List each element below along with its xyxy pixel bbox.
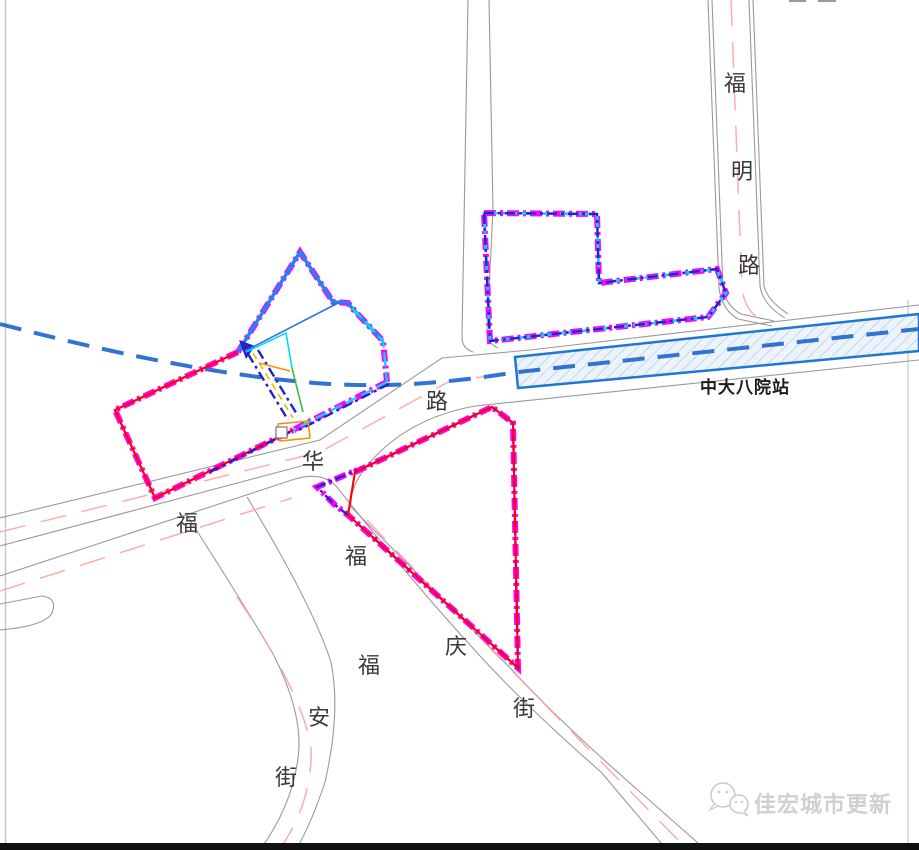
street-name-char-fuqing-2: 庆 [445, 634, 467, 659]
street-name-char-fuming-1: 福 [724, 71, 746, 96]
yellow-corridor-dash [253, 353, 293, 418]
parcel-triangle [317, 407, 518, 668]
road-fuan-east-edge [247, 497, 335, 850]
planning-map-page: 福 明 路 路 华 福 福 庆 街 福 安 街 中大八院站 佳宏城市更新 [0, 0, 919, 850]
street-name-char-fuhua-hua: 华 [302, 449, 324, 474]
centerline-main-second [0, 498, 292, 591]
station-label: 中大八院站 [700, 377, 790, 397]
triangle-navy [317, 407, 518, 668]
triangle-red [348, 407, 518, 668]
centerline-fuqing [367, 520, 688, 850]
wechat-icon [710, 783, 748, 816]
map-canvas: 福 明 路 路 华 福 福 庆 街 福 安 街 中大八院站 佳宏城市更新 [0, 0, 919, 850]
centerline-fuan [237, 597, 311, 850]
road-network [0, 0, 919, 850]
navy-corridor-line-1 [248, 354, 288, 420]
road-main-south-edge-west [0, 476, 667, 850]
watermark: 佳宏城市更新 [710, 783, 892, 817]
street-name-char-fuming-2: 明 [731, 159, 753, 184]
triangle-magenta [317, 407, 518, 668]
street-name-char-fuming-3: 路 [738, 253, 760, 278]
street-name-char-fuan-1: 福 [358, 653, 380, 678]
street-labels: 福 明 路 路 华 福 福 庆 街 福 安 街 [176, 71, 760, 790]
orange-thin-line [259, 363, 290, 371]
road-centerlines [0, 0, 919, 850]
road-main-middle-line [0, 465, 305, 546]
royal-blue-thin-line [245, 302, 340, 351]
street-name-char-fuan-2: 安 [308, 705, 330, 730]
street-name-char-fuhua-lu: 路 [426, 389, 448, 414]
road-southwest-corner-curve [0, 596, 54, 630]
street-name-char-fuan-3: 街 [275, 765, 297, 790]
road-fuan-west-edge [186, 514, 299, 850]
parcel-upper-right [484, 213, 726, 341]
pentagon-blue-edge [238, 252, 383, 352]
metro-station-strip [515, 314, 919, 388]
navy-corridor-line-2 [258, 350, 298, 416]
street-name-char-fuqing-1: 福 [345, 544, 367, 569]
green-thin-line [292, 368, 303, 412]
bottom-black-bar [0, 843, 919, 850]
parcel-upper-right-magenta [484, 213, 726, 341]
road-north-lane-left-edge [462, 0, 473, 352]
street-name-char-fuqing-3: 街 [513, 696, 535, 721]
street-name-char-fuhua-fu: 福 [176, 511, 198, 536]
watermark-text: 佳宏城市更新 [754, 792, 892, 817]
small-white-square [276, 427, 287, 438]
